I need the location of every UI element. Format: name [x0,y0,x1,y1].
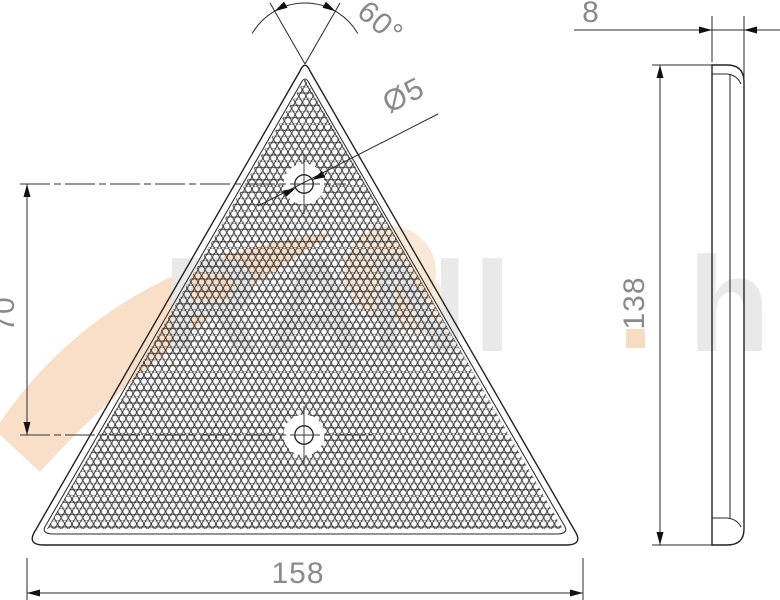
dimension-arrow [744,27,757,34]
base-width-label: 158 [271,557,324,590]
dim-apex-angle: 60° [252,0,409,64]
dimension-arrow [27,590,40,597]
side-profile-inner-bottom [712,518,741,527]
dim-base-width: 158 [27,557,583,600]
technical-drawing-canvas: RANI hu 60° [0,0,780,600]
watermark-dot [626,329,645,348]
dimension-arrow [657,532,664,545]
hole-diameter-label: Ø5 [377,71,429,119]
angle-arc [252,3,358,33]
drawing-svg: RANI hu 60° [0,0,780,600]
height-label: 138 [618,276,651,329]
hole-spacing-label: 70 [0,296,21,331]
side-profile-inner-top [712,74,741,84]
apex-angle-label: 60° [351,0,409,51]
angle-extension-right [305,3,340,64]
dim-thickness: 8 [574,0,780,80]
thickness-label: 8 [582,0,600,29]
dimension-arrow [570,590,583,597]
dimension-arrow [24,184,31,197]
dimension-arrow [657,65,664,78]
watermark-text-right: hu [688,229,780,380]
dimension-arrow [699,27,712,34]
angle-extension-left [270,3,305,64]
